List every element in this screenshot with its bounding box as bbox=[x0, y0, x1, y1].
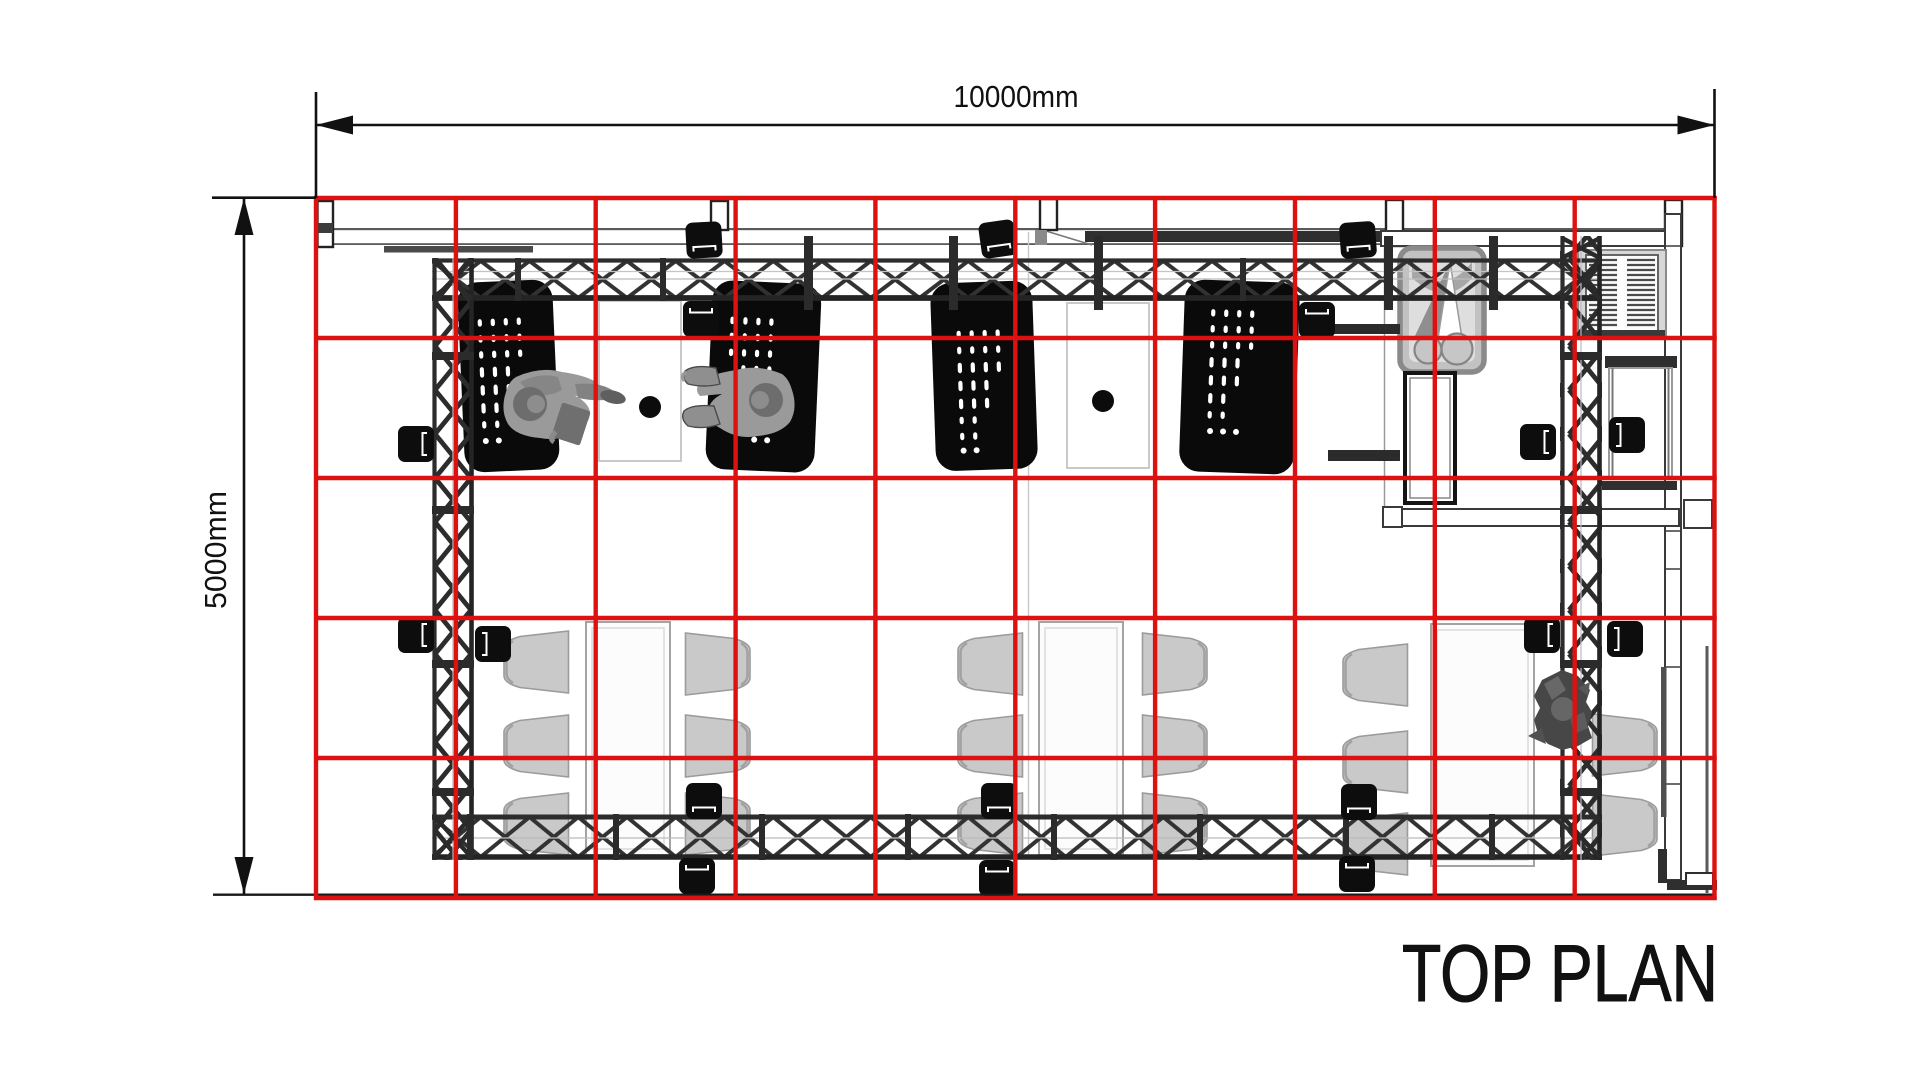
svg-text:TOP PLAN: TOP PLAN bbox=[1402, 929, 1718, 1019]
svg-text:10000mm: 10000mm bbox=[954, 80, 1079, 114]
svg-text:5000mm: 5000mm bbox=[199, 491, 233, 609]
